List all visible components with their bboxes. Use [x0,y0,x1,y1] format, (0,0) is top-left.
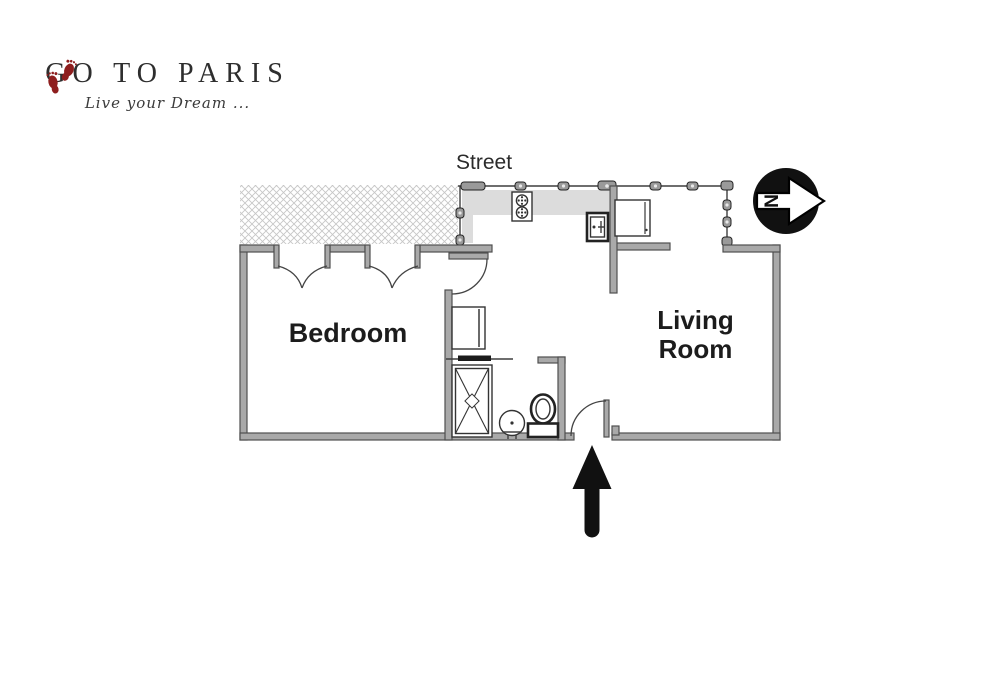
kitchen-sink-icon [587,213,608,241]
floorplan-drawing: N [0,0,1000,698]
shower-icon [452,365,492,437]
entrance-arrow [573,445,612,538]
floorplan-page: GO TO PARIS Live your Dream ... Street B… [0,0,1000,698]
french-doors-right [365,245,420,288]
compass-letter: N [760,194,781,208]
entry-door [571,400,609,437]
bathroom-sliding-door [446,356,513,362]
toilet-icon [528,395,558,438]
washer-icon [452,307,485,349]
kitchen-door [449,253,488,294]
french-doors-left [274,245,330,288]
refrigerator-icon [615,200,650,236]
hatched-neighbor-area [240,185,458,244]
north-compass-icon: N [753,168,824,234]
stove-icon [512,192,532,221]
